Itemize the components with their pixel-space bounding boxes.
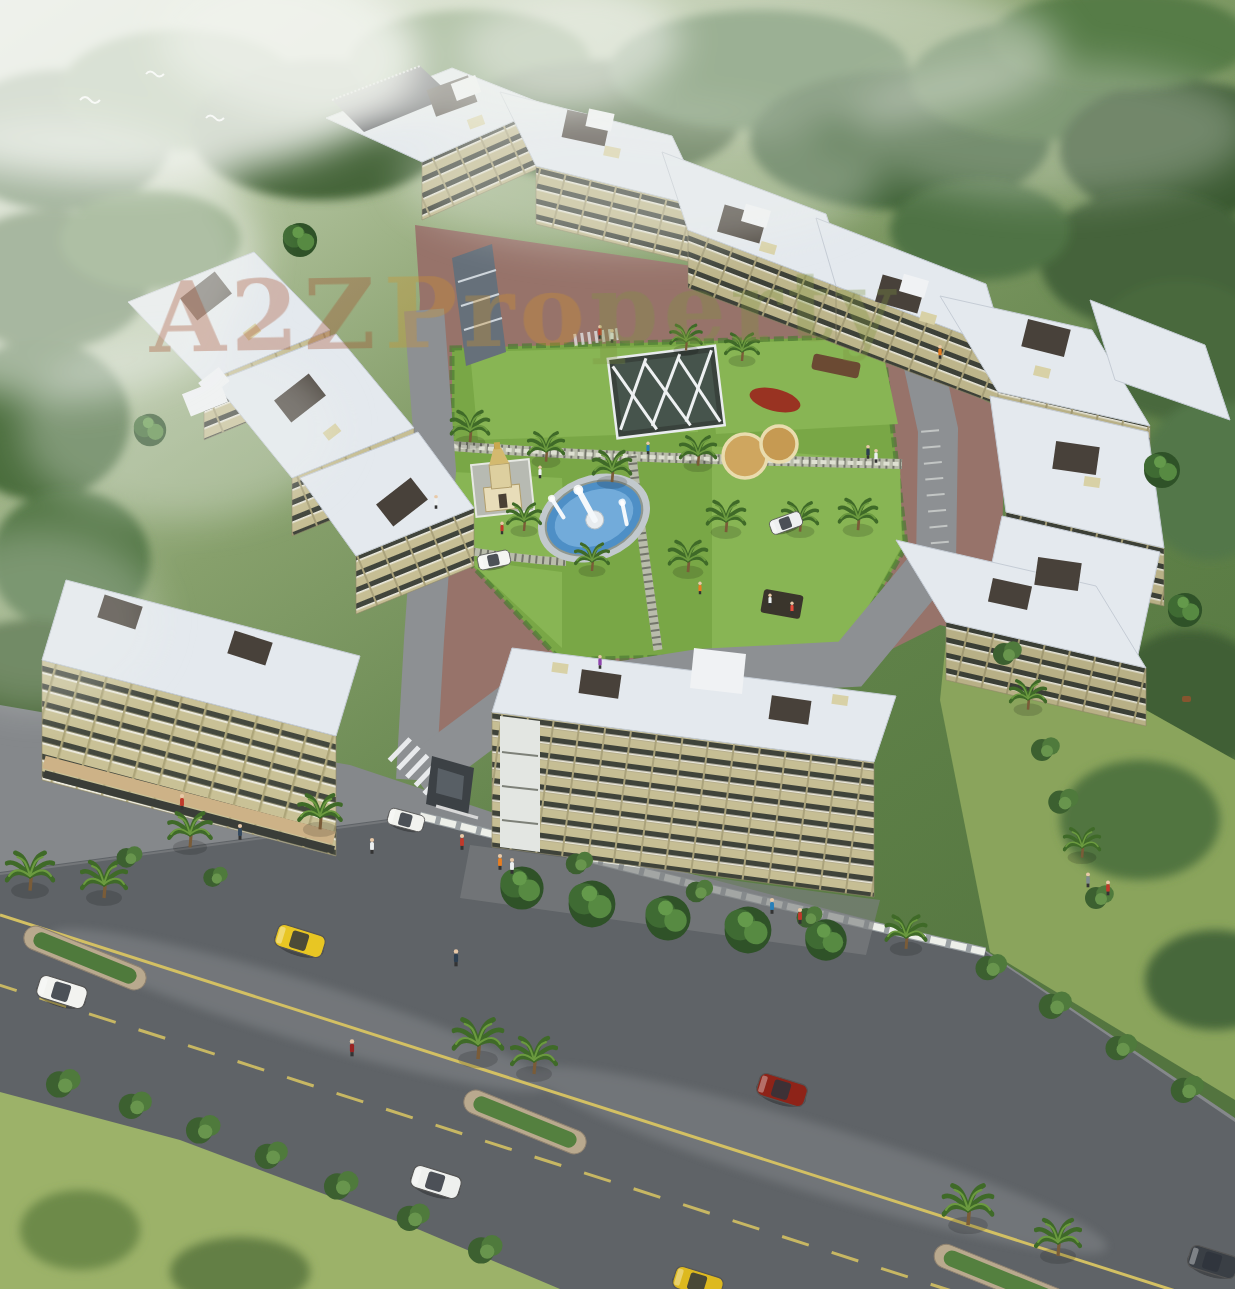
person bbox=[434, 495, 438, 509]
person bbox=[790, 602, 793, 615]
person bbox=[538, 466, 541, 479]
tree bbox=[569, 881, 616, 928]
deer bbox=[1182, 696, 1191, 702]
watermark-part-1: A2Z bbox=[147, 256, 381, 375]
person bbox=[798, 908, 802, 924]
cyclist bbox=[350, 1039, 354, 1056]
person bbox=[238, 824, 242, 840]
tree bbox=[646, 896, 691, 941]
person bbox=[180, 794, 184, 810]
person bbox=[460, 834, 464, 850]
tree bbox=[283, 223, 317, 257]
tree bbox=[725, 907, 772, 954]
person bbox=[770, 898, 774, 914]
person bbox=[938, 345, 942, 359]
tree bbox=[1144, 452, 1180, 488]
watermark-part-3: perty bbox=[589, 247, 901, 367]
person bbox=[498, 854, 502, 870]
tree bbox=[1168, 593, 1202, 627]
aerial-render-stage: A2ZProperty bbox=[0, 0, 1235, 1289]
person bbox=[646, 442, 649, 455]
person bbox=[598, 655, 602, 669]
person bbox=[510, 858, 514, 874]
aerial-render: A2ZProperty bbox=[0, 0, 1235, 1289]
person bbox=[1086, 872, 1090, 887]
person bbox=[454, 949, 458, 966]
watermark-part-2: Pro bbox=[383, 252, 591, 371]
tree bbox=[500, 866, 543, 909]
person bbox=[874, 449, 878, 463]
stair-column-white bbox=[500, 716, 540, 852]
person bbox=[768, 594, 771, 607]
person bbox=[370, 838, 374, 854]
courtyard-garden bbox=[452, 336, 906, 660]
person bbox=[866, 445, 870, 459]
person bbox=[1106, 880, 1110, 895]
person bbox=[698, 582, 701, 595]
person bbox=[500, 522, 503, 535]
watermark-text: A2ZProperty bbox=[147, 247, 900, 375]
